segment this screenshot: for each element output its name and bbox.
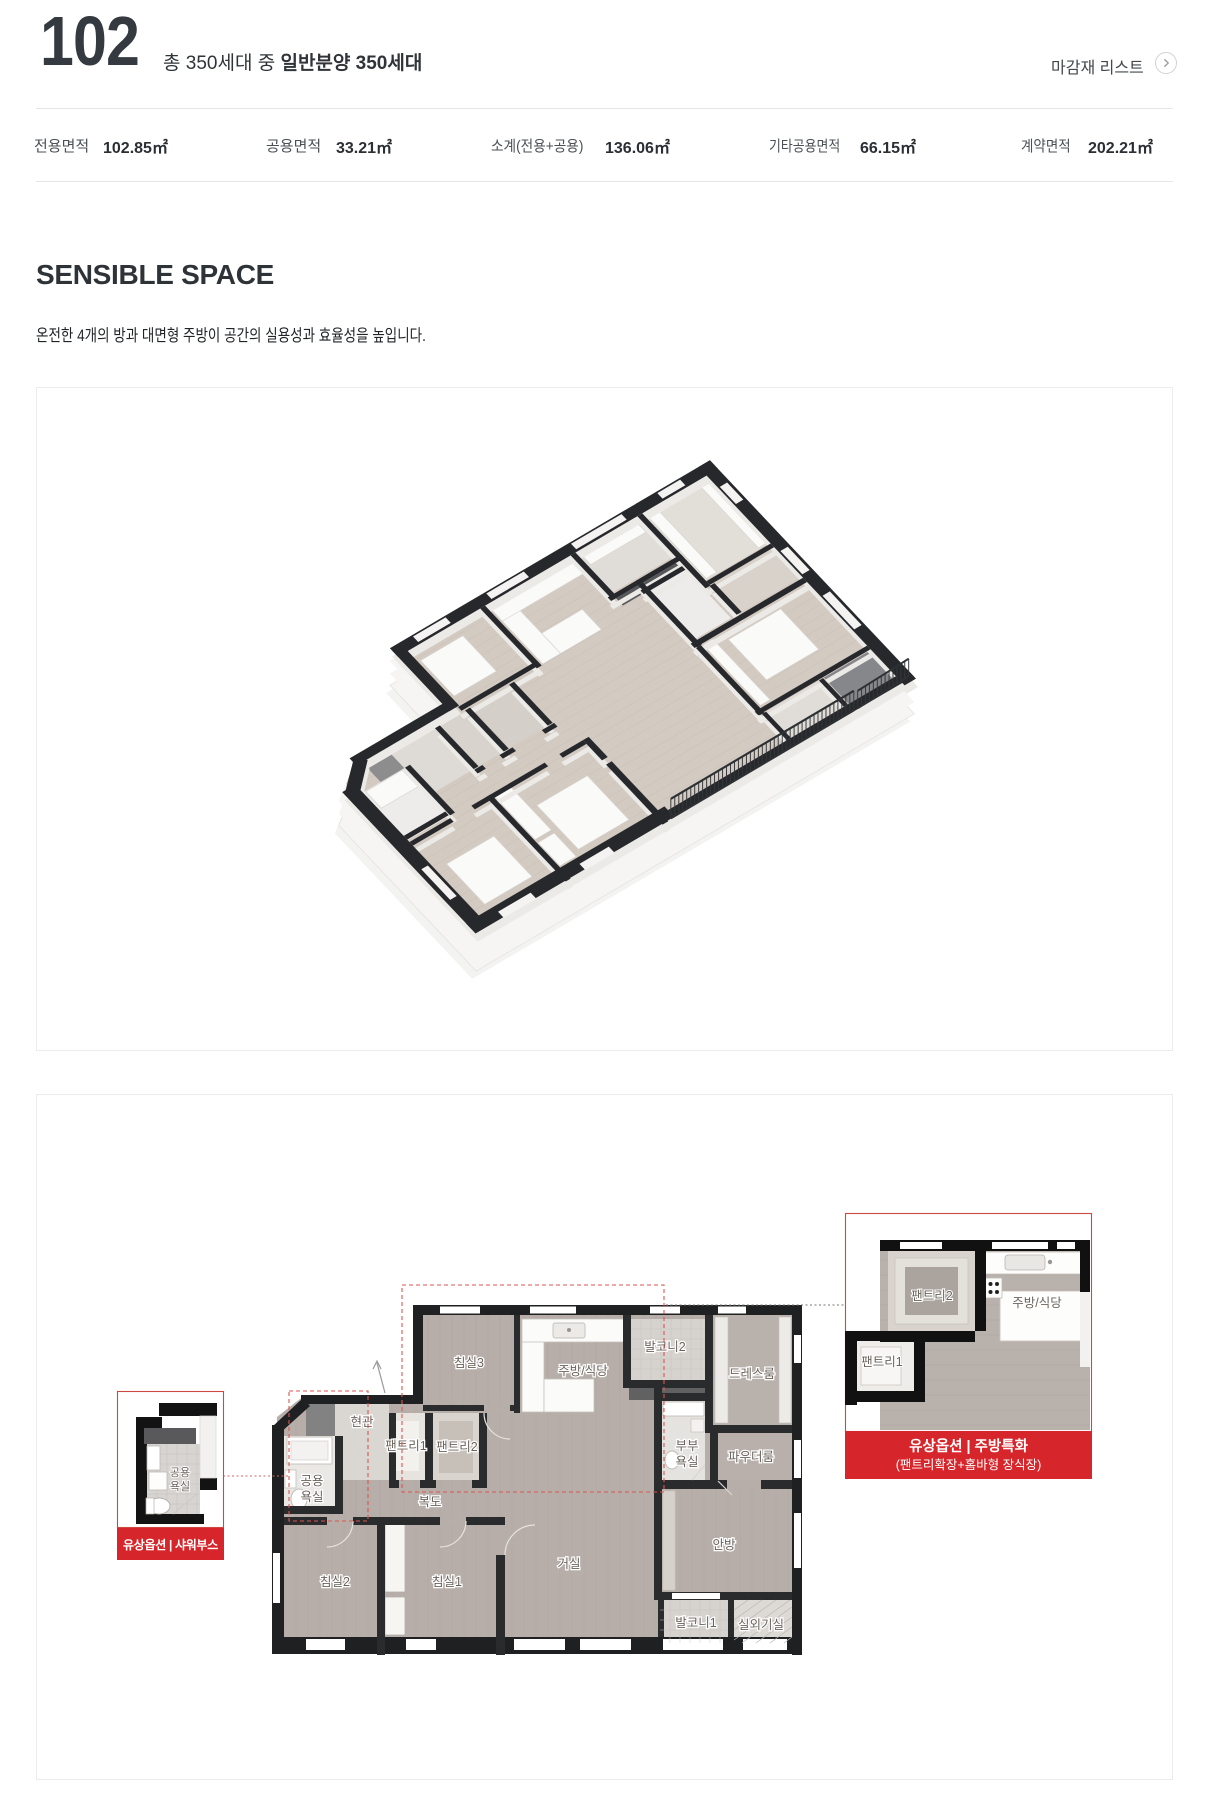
svg-text:팬트리2: 팬트리2 [911, 1289, 953, 1303]
svg-text:팬트리1: 팬트리1 [861, 1355, 903, 1369]
svg-text:침실2: 침실2 [320, 1575, 350, 1589]
svg-text:파우더룸: 파우더룸 [728, 1450, 774, 1464]
svg-text:실외기실: 실외기실 [738, 1618, 784, 1632]
svg-text:욕실: 욕실 [675, 1455, 698, 1469]
svg-text:현관: 현관 [350, 1415, 374, 1429]
svg-text:욕실: 욕실 [300, 1490, 323, 1504]
svg-text:유상옵션 | 샤워부스: 유상옵션 | 샤워부스 [123, 1537, 218, 1552]
svg-text:거실: 거실 [557, 1557, 580, 1571]
svg-text:발코니1: 발코니1 [675, 1616, 717, 1630]
svg-text:주방/식당: 주방/식당 [558, 1364, 608, 1378]
svg-text:팬트리2: 팬트리2 [436, 1440, 478, 1454]
svg-text:공용: 공용 [170, 1466, 190, 1479]
svg-text:침실3: 침실3 [454, 1356, 484, 1370]
svg-text:(팬트리확장+홈바형 장식장): (팬트리확장+홈바형 장식장) [896, 1458, 1042, 1472]
svg-text:안방: 안방 [712, 1538, 736, 1552]
svg-text:부부: 부부 [675, 1439, 698, 1453]
svg-text:복도: 복도 [418, 1495, 441, 1509]
svg-text:유상옵션 | 주방특화: 유상옵션 | 주방특화 [909, 1437, 1028, 1455]
svg-text:침실1: 침실1 [432, 1575, 462, 1589]
svg-text:팬트리1: 팬트리1 [385, 1439, 427, 1453]
svg-text:드레스룸: 드레스룸 [729, 1367, 775, 1381]
svg-text:주방/식당: 주방/식당 [1012, 1296, 1062, 1310]
svg-text:욕실: 욕실 [170, 1480, 190, 1493]
svg-text:공용: 공용 [300, 1474, 323, 1488]
svg-text:발코니2: 발코니2 [644, 1340, 686, 1354]
